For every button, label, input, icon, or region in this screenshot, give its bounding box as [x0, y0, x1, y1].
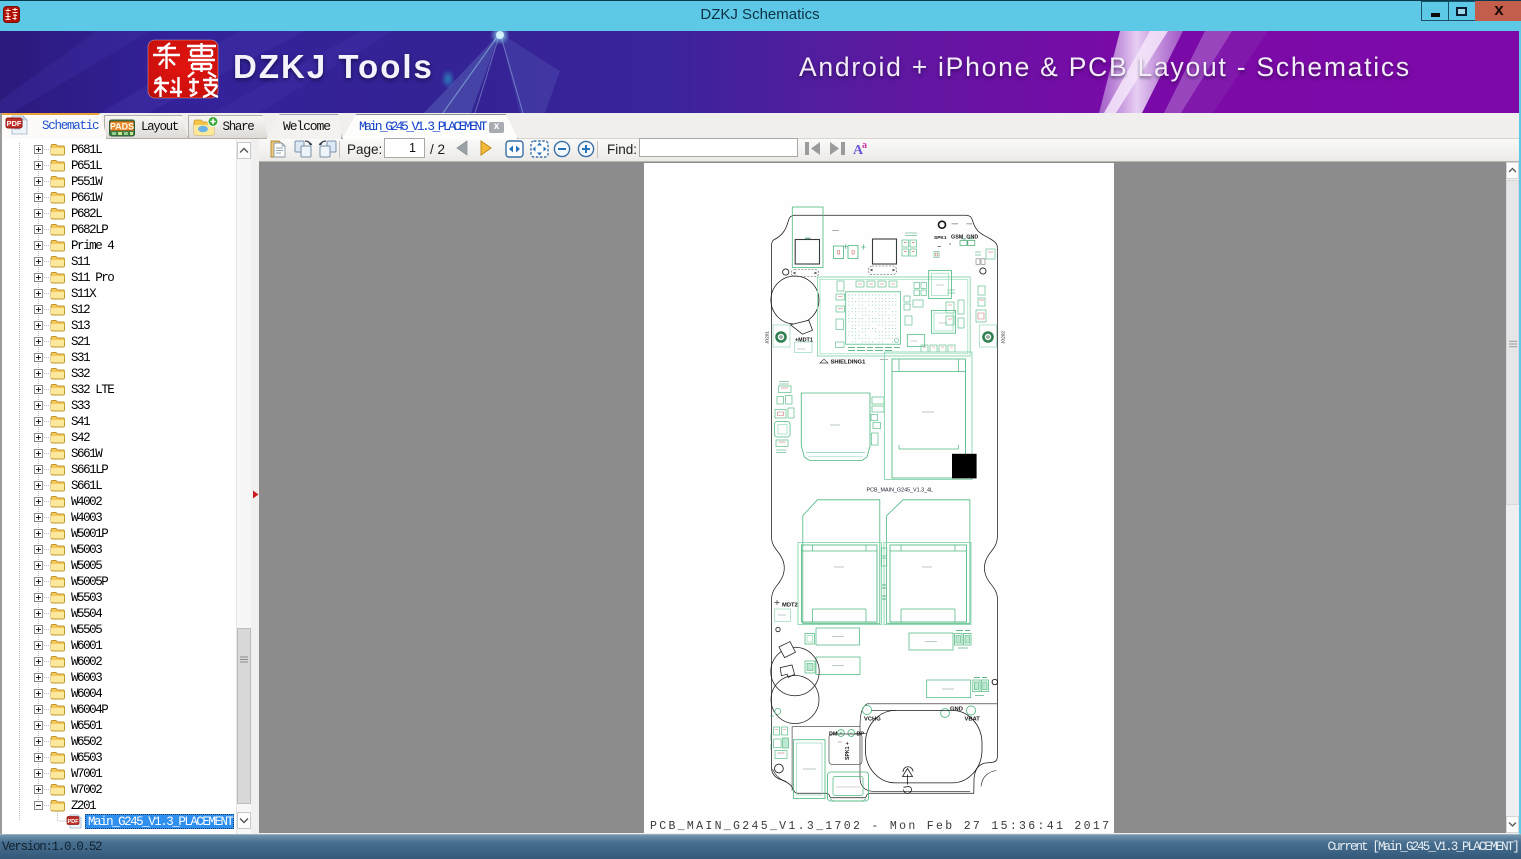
svg-text:PDF: PDF	[68, 819, 80, 825]
svg-text:PADS: PADS	[110, 122, 134, 132]
svg-text:PCB_MAIN_G245_V1.3_1702 - Mon: PCB_MAIN_G245_V1.3_1702 - Mon Feb 27 15:…	[650, 820, 1109, 833]
svg-text:PDF: PDF	[7, 119, 22, 128]
svg-text:a: a	[862, 140, 867, 151]
